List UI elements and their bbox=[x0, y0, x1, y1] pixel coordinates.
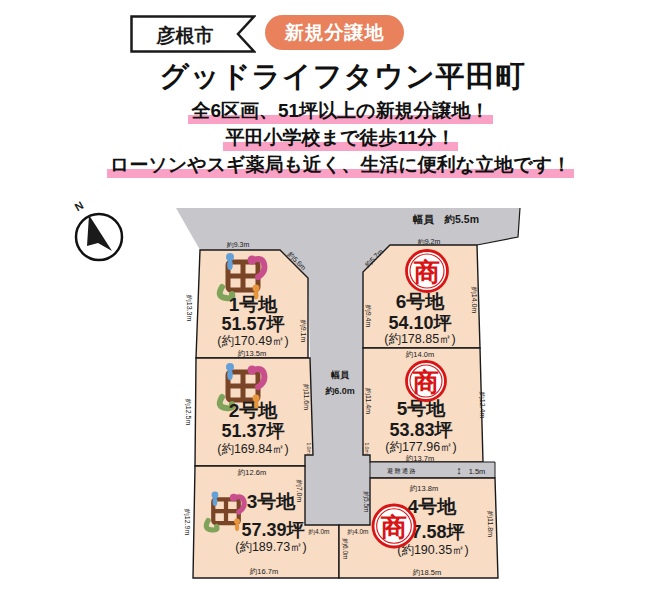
dimension-label: 約13.3m bbox=[186, 295, 193, 322]
lot-6-stamp-label: 商 bbox=[413, 257, 440, 287]
dimension-label: 約4.0m bbox=[348, 528, 369, 535]
dimension-label: 約13.8m bbox=[410, 484, 438, 493]
lot-2-area: (約169.84㎡) bbox=[217, 442, 289, 456]
center-road-width-label-2: 約6.0m bbox=[325, 386, 355, 396]
evacuation-passage: 避難通路 ↕ 1.5m bbox=[370, 462, 495, 478]
negotiation-stamp: 商 bbox=[373, 505, 415, 547]
dimension-label: 約5.5m bbox=[363, 492, 370, 513]
lot-5-tsubo: 53.83坪 bbox=[389, 420, 452, 440]
dimension-label: 約9.2m bbox=[418, 238, 441, 245]
negotiation-stamp: 商 bbox=[407, 362, 446, 401]
dimension-label: 1.0m bbox=[306, 442, 312, 453]
dimension-label: 約4.0m bbox=[309, 528, 330, 535]
dimension-label: 約6.0m bbox=[342, 539, 349, 560]
lot-1-area: (約170.49㎡) bbox=[217, 334, 289, 348]
evacuation-passage-label: 避難通路 bbox=[387, 467, 417, 475]
lot-1: 1号地 51.57坪 (約170.49㎡) bbox=[196, 250, 308, 358]
dimension-label: 約13.5m bbox=[238, 349, 266, 358]
lot-3-area: (約189.73㎡) bbox=[235, 540, 307, 554]
lot-3-name: 3号地 bbox=[247, 491, 297, 512]
dimension-label: 約9.4m bbox=[365, 305, 372, 328]
lot-3-tsubo: 57.39坪 bbox=[241, 520, 304, 540]
dimension-label: 約11.4m bbox=[365, 388, 372, 414]
lot-4-area: (約190.35㎡) bbox=[397, 543, 469, 557]
dimension-label: 約14.0m bbox=[406, 350, 434, 359]
negotiation-stamp: 商 bbox=[407, 251, 448, 292]
flyer-page: { "flyer": { "city": "彦根市", "badge": "新規… bbox=[0, 0, 661, 600]
dimension-label: 約11.6m bbox=[303, 384, 310, 410]
dimension-label: 約13.7m bbox=[406, 454, 434, 463]
dimension-label: 約9.1m bbox=[300, 320, 307, 343]
dimension-label: 約14.0m bbox=[471, 287, 478, 314]
dimension-label: 約9.3m bbox=[227, 241, 250, 248]
dimension-label: 約12.5m bbox=[185, 399, 192, 426]
lot-4-name: 4号地 bbox=[408, 496, 458, 517]
lot-1-name: 1号地 bbox=[229, 294, 279, 315]
compass-north-label: N bbox=[73, 199, 86, 213]
compass: N bbox=[73, 199, 122, 260]
lot-4-stamp-label: 商 bbox=[380, 512, 407, 542]
lot-2-name: 2号地 bbox=[229, 400, 279, 421]
lot-5-area: (約177.96㎡) bbox=[385, 440, 457, 454]
lot-6-area: (約178.85㎡) bbox=[384, 332, 456, 346]
lot-6-name: 6号地 bbox=[396, 291, 446, 312]
dimension-label: 約18.5m bbox=[413, 568, 441, 577]
dimension-label: 約11.8m bbox=[487, 511, 494, 537]
lot-1-tsubo: 51.57坪 bbox=[221, 314, 284, 334]
dimension-label: 1.0m bbox=[364, 442, 370, 453]
lot-6: 6号地 54.10坪 (約178.85㎡) 商 bbox=[363, 245, 480, 348]
lot-6-tsubo: 54.10坪 bbox=[388, 313, 451, 333]
center-road-width-label-1: 幅員 bbox=[331, 370, 350, 380]
lot-5-stamp-label: 商 bbox=[412, 367, 439, 397]
lot-2: 2号地 51.37坪 (約169.84㎡) bbox=[195, 358, 313, 466]
top-road-width-label: 幅員 約5.5m bbox=[412, 213, 479, 225]
dimension-label: 約7.0m bbox=[296, 480, 303, 503]
evacuation-width-label: 1.5m bbox=[469, 467, 486, 476]
site-plan: N 幅員 約5.5m 幅員 約6.0m 1号地 51.57坪 (約170.49㎡… bbox=[0, 0, 661, 600]
dimension-label: 約16.7m bbox=[250, 567, 278, 576]
updown-arrow-icon: ↕ bbox=[456, 464, 462, 476]
lot-5: 5号地 53.83坪 (約177.96㎡) 商 bbox=[363, 348, 483, 462]
dimension-label: 約12.4m bbox=[479, 392, 486, 419]
dimension-label: 約12.6m bbox=[238, 468, 266, 477]
dimension-label: 約12.9m bbox=[184, 509, 191, 536]
lot-2-tsubo: 51.37坪 bbox=[221, 421, 284, 441]
